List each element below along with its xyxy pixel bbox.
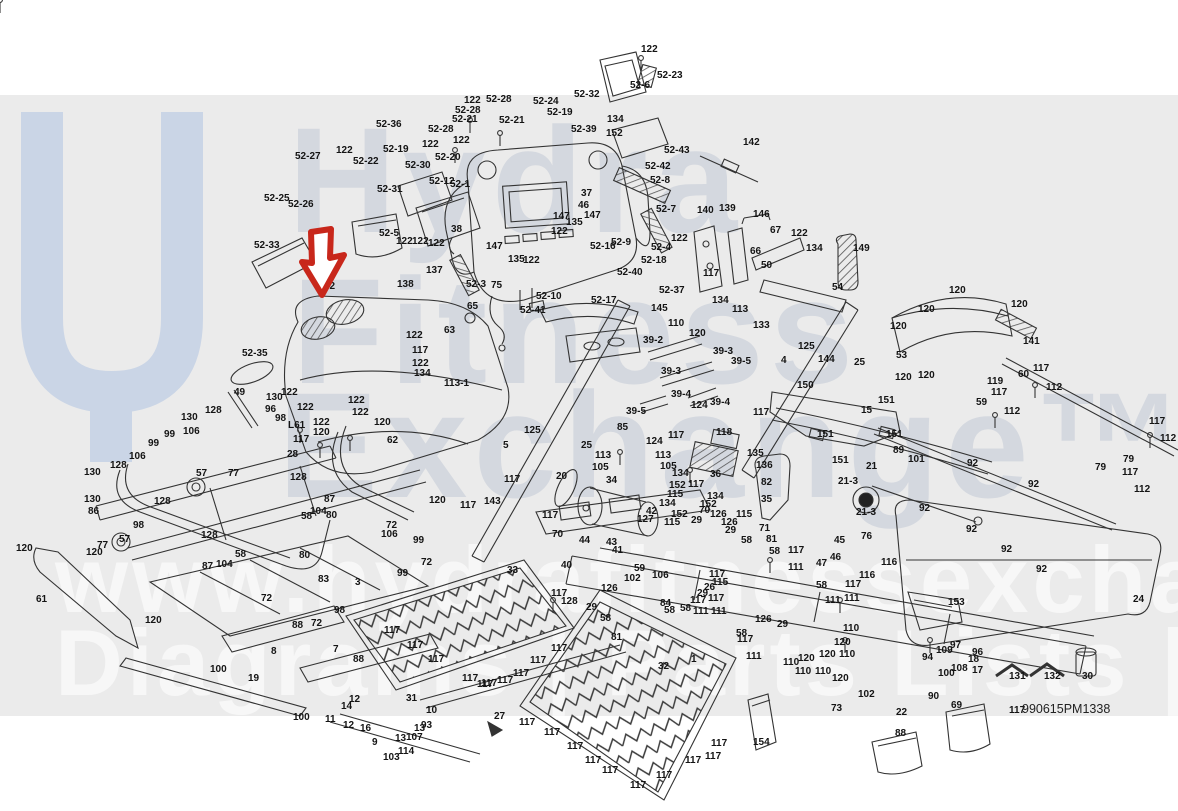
- part-label: 113: [595, 450, 612, 461]
- part-label: 52-40: [617, 267, 643, 278]
- part-label: 94: [922, 652, 934, 663]
- part-label: 133: [753, 320, 770, 331]
- part-label: 21: [866, 461, 878, 472]
- part-label: 98: [275, 413, 287, 424]
- part-label: 120: [890, 321, 907, 332]
- part-label: 21-3: [838, 476, 858, 487]
- part-label: 112: [1160, 433, 1177, 444]
- part-label: 46: [578, 200, 590, 211]
- part-label: 81: [766, 534, 778, 545]
- part-label: 52-19: [383, 144, 409, 155]
- part-label: 25: [854, 357, 866, 368]
- part-label: 36: [710, 469, 722, 480]
- part-label: 150: [797, 380, 814, 391]
- part-label: 4: [781, 355, 787, 366]
- part-label: 120: [145, 615, 162, 626]
- part-label: 103: [383, 752, 400, 763]
- part-label: 112: [1134, 484, 1151, 495]
- part-label: 52-17: [591, 295, 617, 306]
- part-label: 52-41: [520, 305, 546, 316]
- part-label: 117: [551, 588, 568, 599]
- part-label: 21-3: [856, 507, 876, 518]
- part-label: 134: [607, 114, 624, 125]
- part-label: 134: [672, 468, 689, 479]
- part-label: 29: [691, 515, 703, 526]
- part-label: 54: [832, 282, 844, 293]
- part-label: 35: [761, 494, 773, 505]
- part-label: 98: [334, 605, 346, 616]
- part-label: 99: [413, 535, 425, 546]
- part-label: 100: [210, 664, 227, 675]
- part-label: 134: [414, 368, 431, 379]
- part-label: 122: [396, 236, 413, 247]
- part-label: 77: [228, 468, 240, 479]
- part-label: 16: [360, 723, 372, 734]
- part-label: 19: [248, 673, 260, 684]
- part-label: 108: [951, 663, 968, 674]
- part-label: 58: [769, 546, 781, 557]
- part-label: 99: [164, 429, 176, 440]
- part-label: 128: [201, 530, 218, 541]
- part-label: 127: [637, 514, 654, 525]
- part-label: 40: [561, 560, 573, 571]
- part-label: 18: [968, 654, 980, 665]
- part-label: 20: [556, 471, 568, 482]
- part-label: 145: [651, 303, 668, 314]
- part-label: 116: [859, 570, 876, 581]
- part-label: 52-6: [630, 80, 650, 91]
- part-label: 59: [976, 397, 988, 408]
- part-label: 125: [524, 425, 541, 436]
- part-label: 31: [406, 693, 418, 704]
- part-label: 52-33: [254, 240, 280, 251]
- part-label: 117: [630, 780, 647, 791]
- part-label: 117: [991, 387, 1008, 398]
- part-label: 90: [928, 691, 940, 702]
- part-label: 110: [668, 318, 685, 329]
- part-label: 104: [310, 506, 327, 517]
- part-label: 52-37: [659, 285, 685, 296]
- part-label: 126: [601, 583, 618, 594]
- part-label: 92: [967, 458, 979, 469]
- part-label: 113: [732, 304, 749, 315]
- part-label: 92: [1036, 564, 1048, 575]
- part-label: 117: [788, 545, 805, 556]
- part-label: 120: [819, 649, 836, 660]
- part-label: 147: [584, 210, 601, 221]
- part-label: 75: [491, 280, 503, 291]
- part-label: 52-9: [611, 237, 631, 248]
- part-label: 130: [84, 494, 101, 505]
- part-label: 24: [1133, 594, 1145, 605]
- part-label: 88: [353, 654, 365, 665]
- part-label: 130: [181, 412, 198, 423]
- part-label: 39-2: [643, 335, 663, 346]
- part-label: 52-24: [533, 96, 559, 107]
- part-label: 8: [271, 646, 277, 657]
- part-label: 122: [422, 139, 439, 150]
- part-label: 117: [703, 268, 720, 279]
- part-label: 120: [832, 673, 849, 684]
- part-label: 111: [711, 606, 727, 617]
- part-label: 117: [460, 500, 477, 511]
- part-label: 57: [196, 468, 208, 479]
- part-label: 92: [1028, 479, 1040, 490]
- part-label: 52-31: [377, 184, 403, 195]
- part-label: 98: [133, 520, 145, 531]
- part-label: 58: [301, 511, 313, 522]
- part-label: 39-5: [626, 406, 646, 417]
- part-label: 122: [412, 236, 429, 247]
- part-label: 117: [602, 765, 619, 776]
- part-label: 58: [816, 580, 828, 591]
- part-label: 120: [895, 372, 912, 383]
- part-label: 52-4: [651, 242, 671, 253]
- part-label: 71: [759, 523, 771, 534]
- part-label: 117: [585, 755, 602, 766]
- part-label: 135: [566, 217, 583, 228]
- part-label: 122: [348, 395, 365, 406]
- part-label: 79: [1095, 462, 1107, 473]
- part-label: 32: [658, 661, 670, 672]
- part-label: 134: [659, 498, 676, 509]
- part-label: 138: [397, 279, 414, 290]
- part-label: 122: [641, 44, 658, 55]
- part-label: 117: [753, 407, 770, 418]
- part-label: 106: [183, 426, 200, 437]
- part-label: 46: [830, 552, 842, 563]
- part-label: 92: [1001, 544, 1013, 555]
- part-label: L61: [288, 420, 306, 431]
- part-label: 53: [896, 350, 908, 361]
- part-label: 134: [712, 295, 729, 306]
- part-label: 149: [853, 243, 870, 254]
- part-label: 29: [586, 602, 598, 613]
- part-label: 52-19: [547, 107, 573, 118]
- part-label: 29: [725, 525, 737, 536]
- part-label: 10: [426, 705, 438, 716]
- part-label: 37: [581, 188, 593, 199]
- part-label: 117: [513, 668, 530, 679]
- part-label: 38: [451, 224, 463, 235]
- part-label: 81: [611, 632, 623, 643]
- part-label: 117: [407, 640, 424, 651]
- part-label: 69: [951, 700, 963, 711]
- part-label: 87: [324, 494, 336, 505]
- part-label: 45: [834, 535, 846, 546]
- part-label: 117: [1033, 363, 1050, 374]
- part-label: 134: [806, 243, 823, 254]
- part-label: 99: [397, 568, 409, 579]
- part-label: 141: [1023, 336, 1040, 347]
- part-label: 142: [743, 137, 760, 148]
- part-label: 65: [467, 301, 479, 312]
- part-label: 80: [299, 550, 311, 561]
- part-label: 120: [1011, 299, 1028, 310]
- part-label: 52-3: [466, 279, 486, 290]
- part-label: 115: [664, 517, 681, 528]
- part-label: 114: [398, 746, 415, 757]
- part-label: 128: [290, 472, 307, 483]
- part-label: 50: [761, 260, 773, 271]
- part-label: 117: [668, 430, 685, 441]
- part-label: 119: [987, 376, 1004, 387]
- part-label: 117: [542, 510, 559, 521]
- part-label: 113: [655, 450, 672, 461]
- part-label: 52-28: [486, 94, 512, 105]
- part-label: 122: [671, 233, 688, 244]
- part-label: 76: [861, 531, 873, 542]
- sheet-number: 990615PM1338: [1022, 702, 1110, 716]
- part-label: 111: [825, 595, 841, 606]
- part-label: 57: [119, 534, 131, 545]
- part-label: 58: [235, 549, 247, 560]
- part-label: 58: [736, 628, 748, 639]
- part-label: 79: [1123, 454, 1135, 465]
- part-label: 140: [697, 205, 714, 216]
- part-label: 72: [261, 593, 273, 604]
- part-label: 104: [216, 559, 233, 570]
- part-label: 122: [428, 238, 445, 249]
- part-label: 83: [318, 574, 330, 585]
- part-label: 122: [551, 226, 568, 237]
- part-label: 60: [1018, 369, 1030, 380]
- part-label: 128: [154, 496, 171, 507]
- part-label: 58: [600, 613, 612, 624]
- part-label: 151: [878, 395, 895, 406]
- part-label: 106: [381, 529, 398, 540]
- part-label: 130: [84, 467, 101, 478]
- part-label: 139: [719, 203, 736, 214]
- part-label: 102: [624, 573, 641, 584]
- hydra-u-logo-stem: [90, 388, 132, 462]
- part-label: 39-3: [661, 366, 681, 377]
- part-label: 1: [691, 654, 697, 665]
- part-label: 61: [36, 594, 48, 605]
- part-label: 117: [688, 479, 705, 490]
- part-label: 72: [311, 618, 323, 629]
- part-label: 117: [544, 727, 561, 738]
- part-label: 117: [293, 434, 310, 445]
- part-label: 52-20: [435, 152, 461, 163]
- part-label: 136: [756, 460, 773, 471]
- part-label: 101: [908, 454, 925, 465]
- part-label: 128: [205, 405, 222, 416]
- part-label: 62: [387, 435, 399, 446]
- part-label: 87: [202, 561, 214, 572]
- part-label: 117: [428, 654, 445, 665]
- part-label: 67: [770, 225, 782, 236]
- part-label: 102: [858, 689, 875, 700]
- part-label: 122: [352, 407, 369, 418]
- part-label: 117: [711, 738, 728, 749]
- part-label: 151: [817, 429, 834, 440]
- part-label: 120: [313, 427, 330, 438]
- part-label: 111: [788, 562, 804, 573]
- part-label: 58: [664, 605, 676, 616]
- part-label: 3: [355, 577, 361, 588]
- part-label: 11: [325, 714, 336, 725]
- part-label: 52-36: [376, 119, 402, 130]
- part-label: 70: [552, 529, 564, 540]
- part-label: 105: [592, 462, 609, 473]
- part-label: 52-1: [450, 179, 470, 190]
- part-label: 111: [746, 651, 762, 662]
- part-label: 52-28: [428, 124, 454, 135]
- part-label: 120: [374, 417, 391, 428]
- part-label: 151: [832, 455, 849, 466]
- part-label: 120: [16, 543, 33, 554]
- part-label: 117: [705, 751, 722, 762]
- part-label: 110: [839, 649, 856, 660]
- part-label: 117: [685, 755, 702, 766]
- part-label: 117: [656, 770, 673, 781]
- part-label: 120: [918, 304, 935, 315]
- part-label: 52-21: [452, 114, 478, 125]
- part-label: 120: [834, 637, 851, 648]
- part-label: 39-4: [710, 397, 730, 408]
- part-label: 14: [341, 701, 353, 712]
- part-label: 44: [579, 535, 591, 546]
- part-label: 27: [494, 711, 506, 722]
- part-label: 117: [497, 675, 514, 686]
- part-label: 63: [444, 325, 456, 336]
- part-label: 122: [281, 387, 298, 398]
- part-label: 117: [567, 741, 584, 752]
- part-label: 128: [110, 460, 127, 471]
- part-label: 47: [816, 558, 828, 569]
- part-label: 112: [1004, 406, 1021, 417]
- part-label: 52-26: [288, 199, 314, 210]
- part-label: 12: [343, 720, 355, 731]
- part-label: 13: [395, 733, 407, 744]
- part-label: 117: [504, 474, 521, 485]
- part-label: 100: [293, 712, 310, 723]
- part-label: 120: [86, 547, 103, 558]
- exploded-diagram: Hydra Fitness Exchange™ www.hydrafitness…: [0, 0, 1178, 811]
- part-label: 33: [507, 565, 519, 576]
- part-label: 110: [815, 666, 832, 677]
- part-label: 118: [716, 427, 733, 438]
- part-label: 58: [741, 535, 753, 546]
- part-label: 112: [1046, 382, 1063, 393]
- part-label: 124: [646, 436, 663, 447]
- part-label: 147: [486, 241, 503, 252]
- part-label: 85: [617, 422, 629, 433]
- part-label: 7: [333, 644, 339, 655]
- part-label: 113-1: [444, 378, 469, 389]
- part-label: 110: [795, 666, 812, 677]
- part-label: 117: [519, 717, 536, 728]
- part-label: 107: [406, 732, 423, 743]
- part-label: 30: [1082, 671, 1094, 682]
- part-label: 15: [861, 405, 873, 416]
- part-label: 124: [691, 400, 708, 411]
- part-label: 52-8: [650, 175, 670, 186]
- part-label: 130: [266, 392, 283, 403]
- part-label: 25: [581, 440, 593, 451]
- part-label: 111: [844, 593, 860, 604]
- part-label: 88: [895, 728, 907, 739]
- part-label: 41: [612, 545, 624, 556]
- part-label: 39-4: [671, 389, 691, 400]
- part-label: 152: [606, 128, 623, 139]
- part-label: 52-7: [656, 204, 676, 215]
- part-label: 120: [689, 328, 706, 339]
- part-label: 144: [818, 354, 835, 365]
- part-label: 120: [949, 285, 966, 296]
- part-label: 66: [750, 246, 762, 257]
- part-label: 116: [881, 557, 898, 568]
- part-label: 117: [708, 593, 725, 604]
- part-label: 137: [426, 265, 443, 276]
- part-label: 28: [287, 449, 299, 460]
- part-label: 92: [919, 503, 931, 514]
- part-label: 29: [777, 619, 789, 630]
- part-label: 122: [336, 145, 353, 156]
- part-label: 122: [453, 135, 470, 146]
- part-label: 34: [606, 475, 618, 486]
- part-label: 22: [896, 707, 908, 718]
- part-label: 52-42: [645, 161, 671, 172]
- part-label: 72: [421, 557, 433, 568]
- part-label: 86: [88, 506, 100, 517]
- part-label: 110: [843, 623, 860, 634]
- part-label: 126: [755, 614, 772, 625]
- part-label: 52-25: [264, 193, 290, 204]
- part-label: 117: [1149, 416, 1166, 427]
- part-label: 154: [753, 737, 770, 748]
- part-label: 117: [1122, 467, 1139, 478]
- part-label: 122: [791, 228, 808, 239]
- part-label: 153: [948, 597, 965, 608]
- part-label: 49: [234, 387, 246, 398]
- part-label: 52-27: [295, 151, 321, 162]
- part-label: 146: [753, 209, 770, 220]
- part-label: 92: [966, 524, 978, 535]
- part-label: 120: [429, 495, 446, 506]
- part-label: 52-32: [574, 89, 600, 100]
- part-label: 52-35: [242, 348, 268, 359]
- part-label: 120: [798, 653, 815, 664]
- part-label: 39-5: [731, 356, 751, 367]
- part-label: 52-30: [405, 160, 431, 171]
- part-label: 109: [936, 645, 953, 656]
- part-label: 52-21: [499, 115, 525, 126]
- part-label: 5: [503, 440, 509, 451]
- part-label: 17: [972, 665, 984, 676]
- part-label: 106: [129, 451, 146, 462]
- part-label: 132: [1044, 671, 1061, 682]
- part-label: 143: [484, 496, 501, 507]
- part-label: 117: [412, 345, 429, 356]
- part-label: 106: [652, 570, 669, 581]
- parts-diagram-sheet: Hydra Fitness Exchange™ www.hydrafitness…: [0, 0, 1178, 811]
- part-label: 52-23: [657, 70, 683, 81]
- part-label: 52-10: [536, 291, 562, 302]
- part-label: 115: [736, 509, 753, 520]
- part-label: 117: [690, 595, 707, 606]
- part-label: 52-18: [641, 255, 667, 266]
- part-label: 89: [893, 445, 905, 456]
- part-label: 125: [798, 341, 815, 352]
- part-label: 122: [406, 330, 423, 341]
- part-label: 88: [292, 620, 304, 631]
- part-label: 52-43: [664, 145, 690, 156]
- part-label: 82: [761, 477, 773, 488]
- part-label: 117: [384, 625, 401, 636]
- part-label: 122: [297, 402, 314, 413]
